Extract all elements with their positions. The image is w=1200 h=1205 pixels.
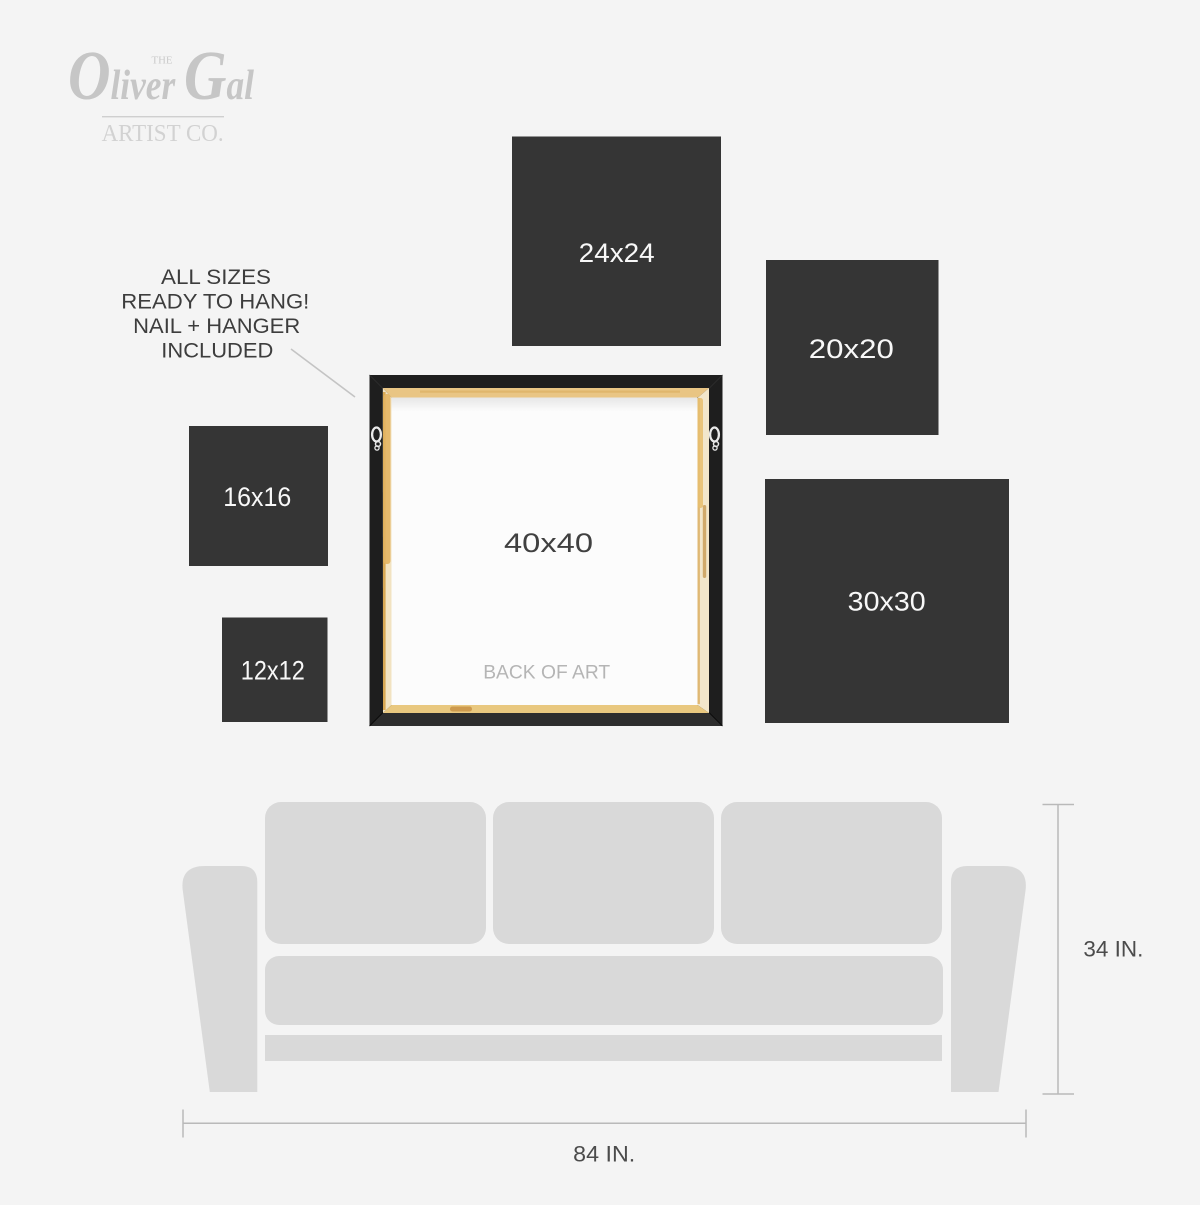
svg-text:30x30: 30x30 — [848, 587, 926, 617]
svg-text:40x40: 40x40 — [504, 528, 593, 558]
svg-text:NAIL + HANGER: NAIL + HANGER — [133, 315, 300, 338]
svg-text:20x20: 20x20 — [809, 334, 894, 364]
svg-text:ALL SIZES: ALL SIZES — [161, 266, 271, 289]
svg-text:24x24: 24x24 — [579, 238, 655, 268]
svg-text:84 IN.: 84 IN. — [573, 1142, 635, 1167]
svg-text:34 IN.: 34 IN. — [1083, 937, 1143, 962]
svg-text:ARTIST CO.: ARTIST CO. — [102, 121, 224, 147]
svg-text:READY TO HANG!: READY TO HANG! — [121, 291, 309, 314]
svg-text:BACK OF ART: BACK OF ART — [483, 662, 610, 684]
svg-text:16x16: 16x16 — [223, 482, 291, 512]
svg-text:INCLUDED: INCLUDED — [161, 340, 273, 363]
svg-text:12x12: 12x12 — [241, 655, 305, 685]
